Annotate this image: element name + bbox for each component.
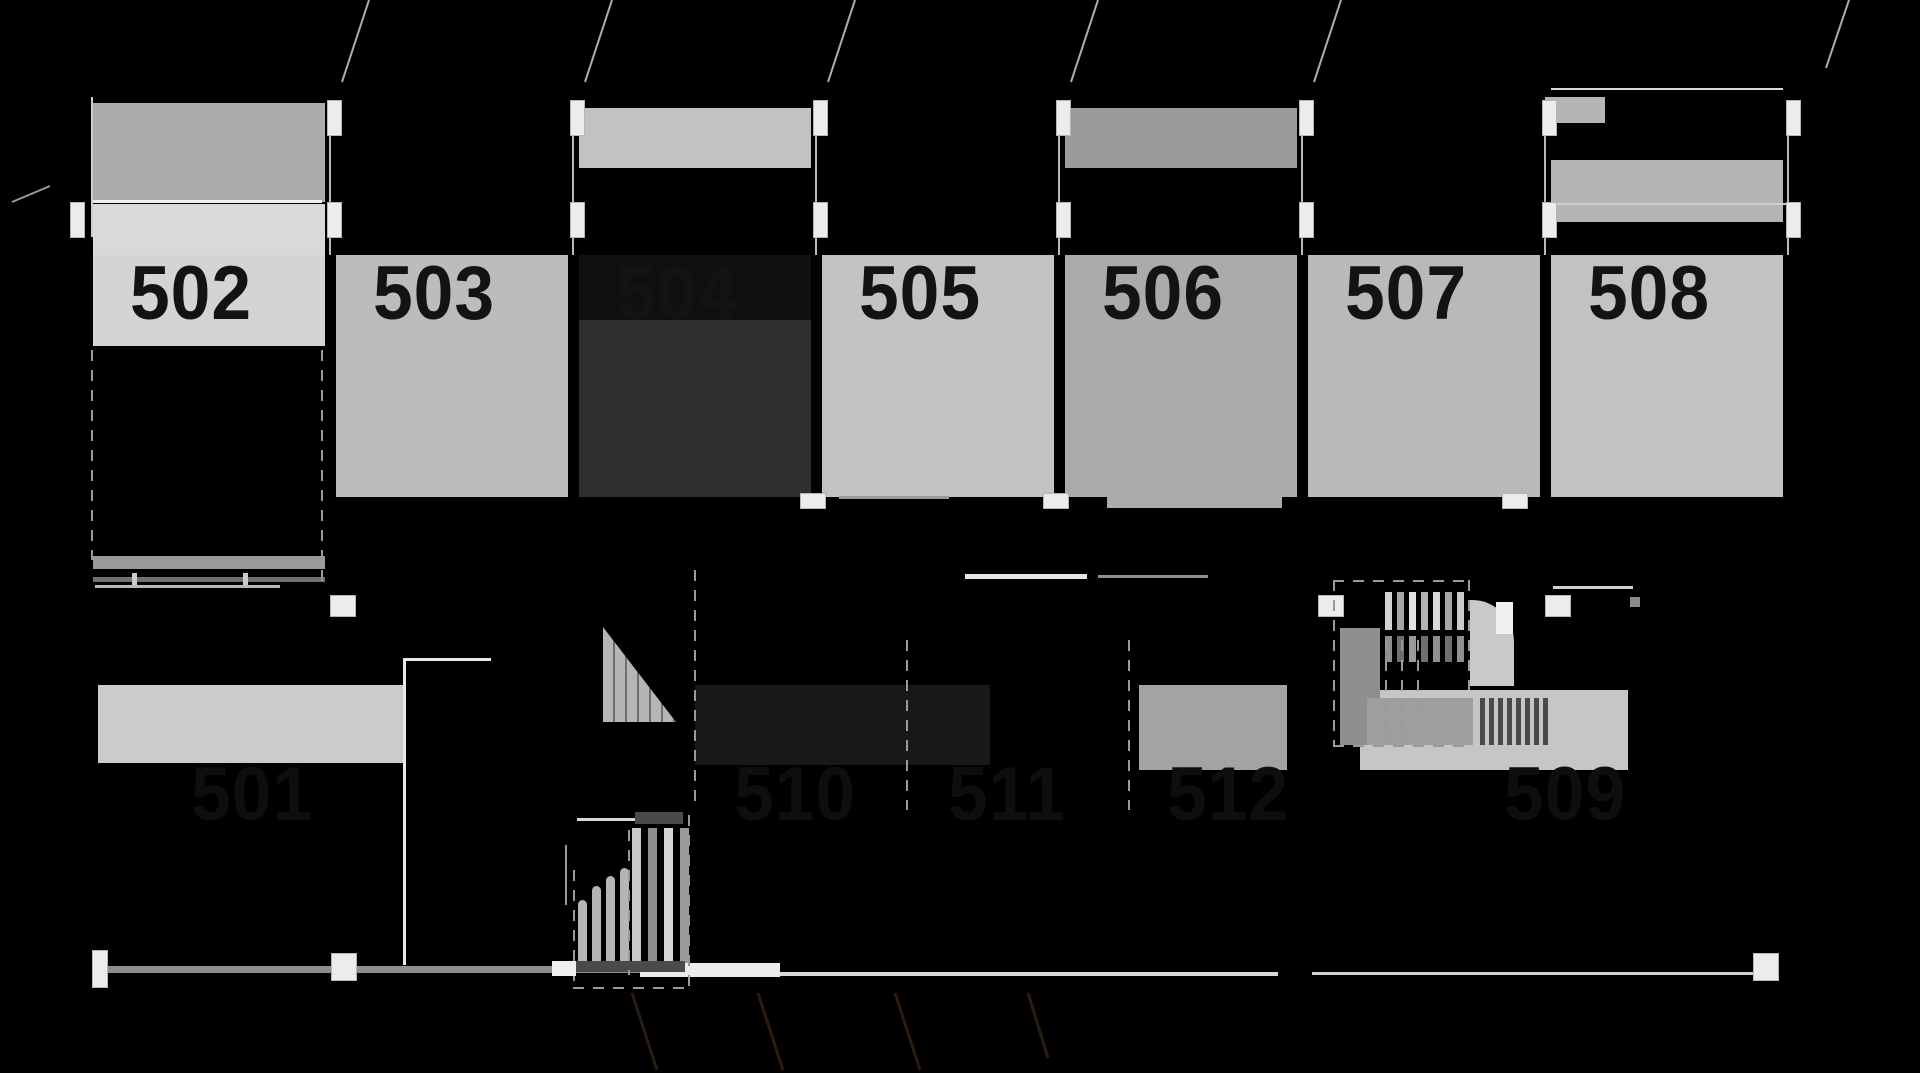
door-marker [1542, 202, 1557, 238]
door-marker [1502, 493, 1528, 509]
wall-segment [243, 573, 248, 585]
stair-upper-tread [1421, 592, 1428, 630]
door-marker [70, 202, 85, 238]
diagonal-line [895, 993, 920, 1070]
stair-upper-tread [1445, 592, 1452, 630]
stair-upper-tread [1409, 636, 1416, 662]
stair-upper-inner-dash [1401, 640, 1403, 745]
wall-segment [132, 573, 137, 585]
stair-upper-tread [1409, 592, 1416, 630]
room-506-area [1065, 108, 1297, 168]
room-number-507: 507 [1284, 256, 1528, 332]
wall-segment [403, 658, 406, 965]
door-marker [331, 953, 357, 981]
diagonal-line [632, 993, 657, 1070]
door-marker [570, 100, 585, 136]
dashed-edge [91, 350, 93, 560]
wall-segment [91, 97, 93, 237]
dashed-edge [906, 640, 908, 810]
stair-lower-tread [680, 828, 689, 963]
stair-lower-tread [664, 828, 673, 963]
diagonal-line [12, 186, 50, 202]
room-number-510: 510 [673, 757, 917, 833]
stair-lower-divider [628, 830, 630, 975]
door-marker [800, 493, 826, 509]
door-marker [1056, 202, 1071, 238]
stair-lower-tread [632, 828, 641, 963]
door-marker [1299, 100, 1314, 136]
room-number-505: 505 [798, 256, 1042, 332]
wall-segment [1545, 203, 1789, 205]
door-marker [1753, 953, 1779, 981]
room-number-504: 504 [555, 256, 799, 332]
room-number-506: 506 [1041, 256, 1285, 332]
diagonal-line [1071, 0, 1098, 82]
stair-upper-stripe [1489, 698, 1494, 745]
door-marker [1786, 202, 1801, 238]
door-marker [1318, 595, 1344, 617]
door-marker [813, 100, 828, 136]
wall-segment [780, 972, 1278, 976]
stair-upper-stripe [1480, 698, 1485, 745]
room-number-512: 512 [1106, 757, 1350, 833]
stair-lower-tread [648, 828, 657, 963]
stair-lower-top-bar [635, 812, 683, 824]
wall-segment [1551, 88, 1783, 90]
wall-segment [95, 585, 280, 588]
stair-upper-stripe [1525, 698, 1530, 745]
room-number-503: 503 [312, 256, 556, 332]
stair-lower-tread [578, 900, 587, 963]
room-508-area [1551, 160, 1783, 222]
room-number-502: 502 [69, 256, 313, 332]
diagonal-line [1314, 0, 1341, 82]
stair-upper-tread [1433, 592, 1440, 630]
diagonal-line [585, 0, 612, 82]
room-502-area [93, 103, 325, 202]
dashed-edge [321, 350, 323, 590]
stair-upper-inner-dash [1417, 640, 1419, 710]
stair-lower-outline [573, 987, 688, 989]
stair-upper-stripe [1516, 698, 1521, 745]
diagonal-line [1826, 0, 1849, 68]
diagonal-line [758, 993, 783, 1070]
stair-upper-tread [1385, 592, 1392, 630]
stair-lower-bottom-bar [575, 961, 685, 972]
room-502-deck-bar [93, 577, 325, 582]
stair-lower-tread [592, 886, 601, 963]
room-504-area [579, 108, 811, 168]
diagonal-line [828, 0, 855, 82]
door-marker [1786, 100, 1801, 136]
wall-segment [1312, 972, 1757, 975]
stair-upper-slab [1496, 602, 1513, 634]
wall-segment [1098, 575, 1208, 578]
door-marker [327, 202, 342, 238]
wall-segment [1630, 597, 1640, 607]
room-number-501: 501 [130, 757, 374, 833]
wall-segment [1553, 586, 1633, 589]
diagonal-line [342, 0, 369, 82]
room-504-area [579, 320, 811, 497]
stair-upper-tread [1433, 636, 1440, 662]
dashed-edge [694, 570, 696, 810]
stair-upper-outline [1333, 580, 1335, 745]
wall-segment [839, 496, 949, 499]
room-502-area [93, 204, 325, 255]
room-506-area [1107, 497, 1282, 508]
stair-upper-stripe [1534, 698, 1539, 745]
room-number-509: 509 [1443, 757, 1687, 833]
door-marker [330, 595, 356, 617]
door-marker [1056, 100, 1071, 136]
door-marker [570, 202, 585, 238]
door-marker [1043, 493, 1069, 509]
door-marker [1542, 100, 1557, 136]
stair-upper-tread [1457, 592, 1464, 630]
stair-lower-tread [606, 876, 615, 963]
stair-upper-tread [1445, 636, 1452, 662]
stair-upper-outline [1333, 580, 1468, 582]
diagonal-line [1028, 993, 1048, 1058]
door-marker [813, 202, 828, 238]
room-number-508: 508 [1527, 256, 1771, 332]
floor-plan-canvas: 502503504505506507508501510511512509 [0, 0, 1920, 1073]
stair-upper-tread [1421, 636, 1428, 662]
stair-upper-inner-dash [1385, 640, 1387, 745]
door-marker [327, 100, 342, 136]
door-marker [1299, 202, 1314, 238]
dashed-edge [1128, 640, 1130, 810]
wall-segment [965, 574, 1087, 579]
stair-upper-stripe [1498, 698, 1503, 745]
room-502-deck-bar [93, 556, 325, 569]
door-marker [92, 950, 108, 988]
wall-segment [93, 200, 322, 203]
stair-upper-lower-bar [1367, 698, 1473, 745]
stair-lower-landing [552, 961, 576, 976]
room-number-511: 511 [885, 757, 1129, 833]
door-marker [1545, 595, 1571, 617]
stair-upper-stripe [1507, 698, 1512, 745]
stair-upper-tread [1397, 592, 1404, 630]
stair-upper-stripe [1543, 698, 1548, 745]
stair-upper-outline [1333, 745, 1468, 747]
wall-segment [565, 845, 567, 905]
stair-upper-tread [1457, 636, 1464, 662]
wall-segment [403, 658, 491, 661]
